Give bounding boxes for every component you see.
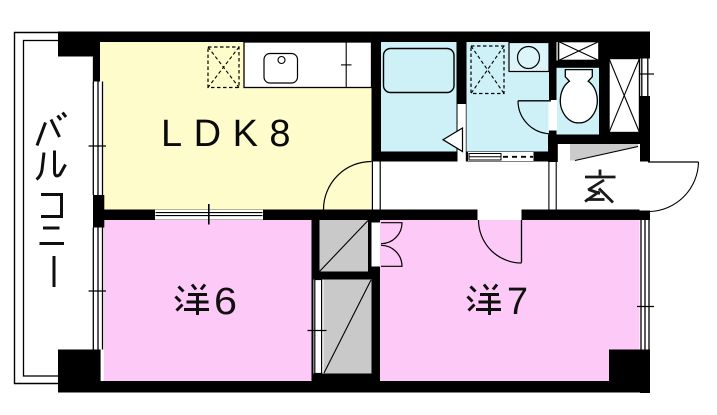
svg-text:LDK8: LDK8 xyxy=(161,113,302,155)
svg-text:7: 7 xyxy=(507,281,528,323)
svg-text:6: 6 xyxy=(214,281,237,323)
